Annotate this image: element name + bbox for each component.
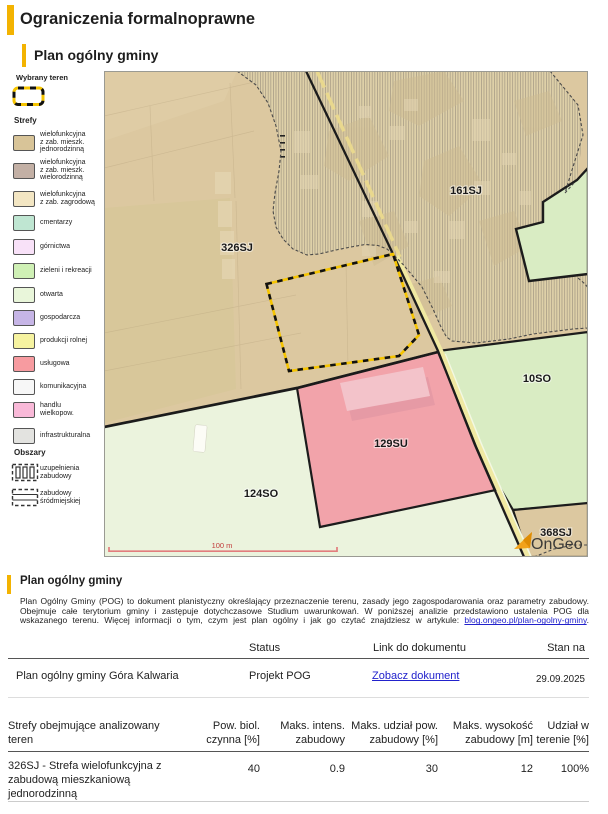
svg-text:161SJ: 161SJ (450, 185, 482, 197)
svg-text:10SO: 10SO (523, 373, 552, 385)
svg-text:OnGeo: OnGeo (531, 536, 583, 553)
svg-text:124SO: 124SO (244, 488, 279, 500)
svg-text:326SJ: 326SJ (221, 242, 253, 254)
svg-text:100 m: 100 m (212, 541, 233, 550)
svg-text:129SU: 129SU (374, 438, 408, 450)
